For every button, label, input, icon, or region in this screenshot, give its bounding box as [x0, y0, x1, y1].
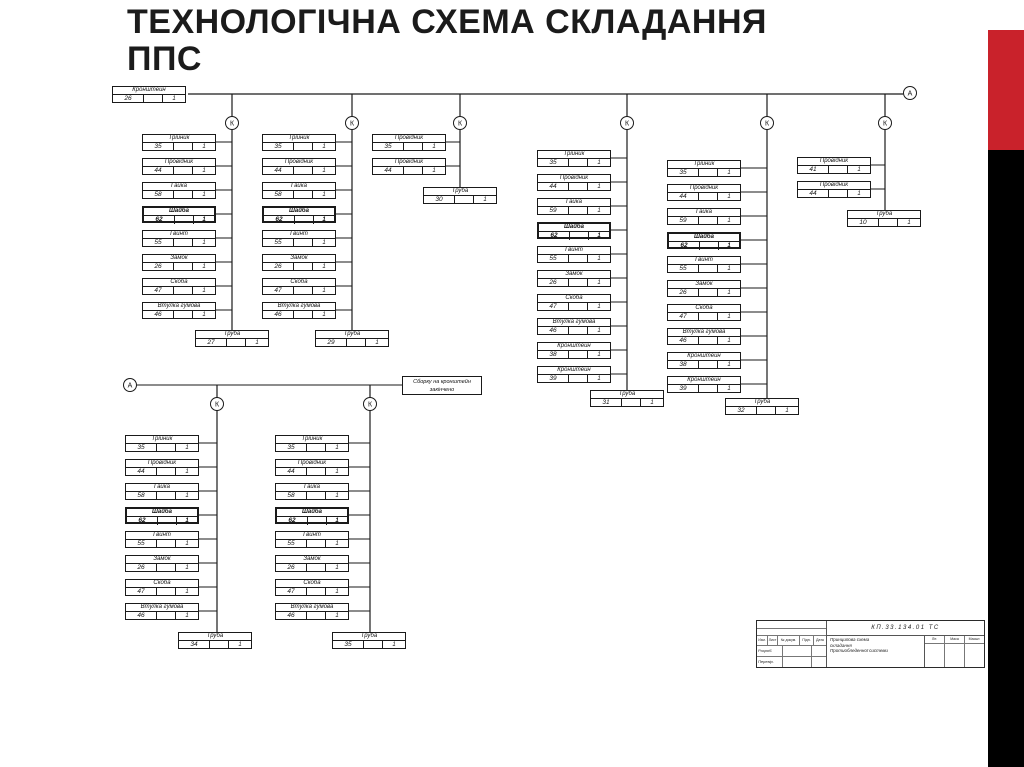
part-qty: 1	[175, 612, 198, 620]
part-box: Труба301	[423, 187, 497, 204]
part-qty: 1	[192, 311, 215, 319]
part-box: Скоба471	[142, 278, 216, 295]
part-box: Замок261	[537, 270, 611, 287]
part-qty: 1	[312, 143, 335, 151]
part-spare-cell	[306, 564, 325, 572]
part-spare-cell	[698, 385, 717, 393]
part-qty: 1	[587, 303, 610, 311]
part-box: Шайба621	[142, 206, 216, 223]
part-box: Кронштейн391	[667, 376, 741, 393]
part-number: 35	[373, 143, 403, 151]
part-qty: 1	[717, 217, 740, 225]
part-spare-cell	[346, 339, 365, 347]
part-number: 62	[144, 216, 174, 224]
part-number: 35	[668, 169, 698, 177]
part-spare-cell	[156, 444, 175, 452]
part-number: 44	[373, 167, 403, 175]
part-box: Втулка гумова461	[262, 302, 336, 319]
part-name: Провідник	[276, 460, 348, 468]
part-name: Кронштейн	[113, 87, 185, 95]
part-name: Замок	[263, 255, 335, 263]
part-qty: 1	[847, 190, 870, 198]
part-box: Труба311	[590, 390, 664, 407]
part-spare-cell	[156, 492, 175, 500]
part-name: Шайба	[144, 208, 214, 216]
part-spare-cell	[568, 159, 587, 167]
part-name: Провідник	[373, 159, 445, 167]
part-number: 62	[127, 517, 157, 525]
title-block: Изм. Лист № докум. Підп. Дата Розроб. Пе…	[756, 620, 985, 668]
part-qty: 1	[245, 339, 268, 347]
part-spare-cell	[156, 588, 175, 596]
part-spare-cell	[569, 232, 588, 240]
part-name: Трійник	[668, 161, 740, 169]
title-block-revision-table: Изм. Лист № докум. Підп. Дата Розроб. Пе…	[757, 621, 827, 667]
part-name: Гайка	[276, 484, 348, 492]
part-name: Труба	[179, 633, 251, 641]
part-box: Провідник351	[372, 134, 446, 151]
part-spare-cell	[403, 167, 422, 175]
part-qty: 1	[192, 167, 215, 175]
part-spare-cell	[156, 612, 175, 620]
part-box: Скоба471	[262, 278, 336, 295]
part-spare-cell	[173, 311, 192, 319]
part-number: 46	[668, 337, 698, 345]
part-name: Трійник	[538, 151, 610, 159]
part-name: Гайка	[126, 484, 198, 492]
part-number: 44	[126, 468, 156, 476]
part-qty: 1	[193, 216, 214, 224]
part-box: Труба291	[315, 330, 389, 347]
part-box: Шайба621	[667, 232, 741, 249]
part-qty: 1	[325, 444, 348, 452]
document-number: КП.33.134.01 ТС	[827, 621, 984, 636]
part-name: Втулка гумова	[538, 319, 610, 327]
part-spare-cell	[293, 311, 312, 319]
part-number: 32	[726, 407, 756, 415]
part-box: Шайба621	[537, 222, 611, 239]
part-spare-cell	[306, 468, 325, 476]
part-number: 44	[276, 468, 306, 476]
part-qty: 1	[717, 361, 740, 369]
part-spare-cell	[878, 219, 897, 227]
part-box: Втулка гумова461	[667, 328, 741, 345]
part-number: 29	[316, 339, 346, 347]
part-spare-cell	[307, 517, 326, 525]
part-number: 62	[539, 232, 569, 240]
part-spare-cell	[306, 444, 325, 452]
part-box: Шайба621	[275, 507, 349, 524]
part-name: Замок	[538, 271, 610, 279]
part-spare-cell	[698, 289, 717, 297]
part-name: Гвинт	[668, 257, 740, 265]
part-name: Труба	[196, 331, 268, 339]
part-name: Гайка	[668, 209, 740, 217]
part-number: 26	[263, 263, 293, 271]
part-box: Скоба471	[537, 294, 611, 311]
part-name: Трійник	[276, 436, 348, 444]
part-number: 44	[538, 183, 568, 191]
part-name: Провідник	[798, 182, 870, 190]
part-name: Кронштейн	[538, 367, 610, 375]
part-name: Скоба	[668, 305, 740, 313]
part-number: 38	[538, 351, 568, 359]
part-spare-cell	[173, 167, 192, 175]
part-number: 58	[126, 492, 156, 500]
part-number: 55	[276, 540, 306, 548]
part-spare-cell	[568, 207, 587, 215]
part-qty: 1	[325, 612, 348, 620]
part-spare-cell	[293, 287, 312, 295]
part-spare-cell	[568, 351, 587, 359]
part-box: Трійник351	[275, 435, 349, 452]
part-box: Провідник441	[275, 459, 349, 476]
part-box: Кронштейн381	[667, 352, 741, 369]
part-box: Гайка581	[262, 182, 336, 199]
part-spare-cell	[828, 190, 847, 198]
part-qty: 1	[175, 564, 198, 572]
part-name: Провідник	[798, 158, 870, 166]
part-box: Труба271	[195, 330, 269, 347]
part-qty: 1	[717, 169, 740, 177]
part-qty: 1	[312, 191, 335, 199]
part-box: Провідник441	[262, 158, 336, 175]
part-box: Гайка591	[667, 208, 741, 225]
part-spare-cell	[568, 327, 587, 335]
part-number: 35	[263, 143, 293, 151]
part-qty: 1	[587, 375, 610, 383]
part-name: Труба	[316, 331, 388, 339]
part-qty: 1	[325, 468, 348, 476]
part-box: Провідник441	[142, 158, 216, 175]
part-number: 35	[538, 159, 568, 167]
part-box: Втулка гумова461	[275, 603, 349, 620]
part-qty: 1	[312, 263, 335, 271]
part-qty: 1	[587, 183, 610, 191]
part-number: 39	[668, 385, 698, 393]
part-qty: 1	[382, 641, 405, 649]
part-box: Провідник441	[667, 184, 741, 201]
part-name: Трійник	[143, 135, 215, 143]
part-name: Гвинт	[143, 231, 215, 239]
part-qty: 1	[312, 311, 335, 319]
part-spare-cell	[699, 242, 718, 250]
part-name: Гвинт	[126, 532, 198, 540]
part-box: Скоба471	[275, 579, 349, 596]
part-qty: 1	[587, 351, 610, 359]
part-number: 46	[263, 311, 293, 319]
part-name: Замок	[668, 281, 740, 289]
part-name: Кронштейн	[668, 353, 740, 361]
part-name: Труба	[424, 188, 496, 196]
part-box: Замок261	[667, 280, 741, 297]
part-spare-cell	[756, 407, 775, 415]
part-number: 47	[276, 588, 306, 596]
part-number: 41	[798, 166, 828, 174]
part-number: 58	[143, 191, 173, 199]
part-name: Шайба	[539, 224, 609, 232]
part-spare-cell	[157, 517, 176, 525]
part-name: Гайка	[263, 183, 335, 191]
part-spare-cell	[698, 265, 717, 273]
title-block-header-row: Изм. Лист № докум. Підп. Дата	[757, 635, 826, 645]
part-qty: 1	[365, 339, 388, 347]
part-box: Трійник351	[125, 435, 199, 452]
part-qty: 1	[192, 143, 215, 151]
part-number: 55	[263, 239, 293, 247]
title-block-grid: Літ. Маса Масшт.	[924, 636, 984, 667]
part-number: 26	[538, 279, 568, 287]
part-number: 44	[668, 193, 698, 201]
part-name: Скоба	[126, 580, 198, 588]
part-spare-cell	[306, 612, 325, 620]
part-name: Шайба	[127, 509, 197, 517]
part-box: Труба321	[725, 398, 799, 415]
part-name: Скоба	[143, 279, 215, 287]
part-qty: 1	[473, 196, 496, 204]
part-number: 46	[126, 612, 156, 620]
part-number: 62	[277, 517, 307, 525]
part-qty: 1	[587, 159, 610, 167]
part-box: Гвинт551	[262, 230, 336, 247]
part-box: Замок261	[275, 555, 349, 572]
title-block-row-checker: Перевір.	[757, 656, 826, 667]
part-spare-cell	[173, 287, 192, 295]
part-spare-cell	[568, 279, 587, 287]
part-spare-cell	[454, 196, 473, 204]
part-qty: 1	[175, 540, 198, 548]
part-spare-cell	[156, 468, 175, 476]
part-box: Провідник441	[125, 459, 199, 476]
part-number: 35	[276, 444, 306, 452]
part-box: Скоба471	[125, 579, 199, 596]
part-name: Гайка	[538, 199, 610, 207]
part-box: Трійник351	[667, 160, 741, 177]
part-number: 44	[798, 190, 828, 198]
part-number: 26	[668, 289, 698, 297]
part-name: Провідник	[668, 185, 740, 193]
part-name: Кронштейн	[538, 343, 610, 351]
part-spare-cell	[173, 239, 192, 247]
title-block-row-developer: Розроб.	[757, 645, 826, 656]
note-box: Сборку на кронштейн закінчено	[402, 376, 482, 395]
part-number: 55	[538, 255, 568, 263]
slide-canvas: ТЕХНОЛОГІЧНА СХЕМА СКЛАДАННЯ ППС ККККККК…	[0, 0, 1024, 767]
part-spare-cell	[568, 255, 587, 263]
part-box: Гвинт551	[667, 256, 741, 273]
part-name: Труба	[848, 211, 920, 219]
part-qty: 1	[312, 287, 335, 295]
part-spare-cell	[226, 339, 245, 347]
part-number: 35	[126, 444, 156, 452]
part-name: Гвинт	[276, 532, 348, 540]
part-number: 55	[143, 239, 173, 247]
part-name: Труба	[591, 391, 663, 399]
part-number: 58	[276, 492, 306, 500]
part-box: Замок261	[125, 555, 199, 572]
part-box: Кронштейн391	[537, 366, 611, 383]
part-box: Гайка581	[125, 483, 199, 500]
part-name: Скоба	[538, 295, 610, 303]
part-spare-cell	[156, 540, 175, 548]
part-box: Гвинт551	[537, 246, 611, 263]
part-box: Втулка гумова461	[125, 603, 199, 620]
part-box: Гвинт551	[275, 531, 349, 548]
part-qty: 1	[192, 263, 215, 271]
part-number: 55	[668, 265, 698, 273]
part-box: Труба341	[178, 632, 252, 649]
part-box: Трійник351	[537, 150, 611, 167]
part-qty: 1	[192, 287, 215, 295]
part-spare-cell	[209, 641, 228, 649]
part-qty: 1	[587, 207, 610, 215]
part-spare-cell	[293, 191, 312, 199]
part-number: 35	[143, 143, 173, 151]
part-name: Скоба	[276, 580, 348, 588]
part-box: Гайка591	[537, 198, 611, 215]
part-number: 44	[143, 167, 173, 175]
drawing-description: Принципова схема складання Протиобледенн…	[827, 636, 924, 667]
part-qty: 1	[192, 191, 215, 199]
part-qty: 1	[587, 327, 610, 335]
part-box: Втулка гумова461	[142, 302, 216, 319]
part-spare-cell	[293, 239, 312, 247]
part-name: Замок	[126, 556, 198, 564]
part-name: Шайба	[277, 509, 347, 517]
part-number: 26	[126, 564, 156, 572]
part-qty: 1	[717, 289, 740, 297]
part-box: Провідник441	[372, 158, 446, 175]
part-box: Кронштейн261	[112, 86, 186, 103]
part-box: Провідник441	[537, 174, 611, 191]
part-qty: 1	[325, 540, 348, 548]
part-name: Провідник	[263, 159, 335, 167]
part-name: Втулка гумова	[276, 604, 348, 612]
part-number: 55	[126, 540, 156, 548]
part-name: Втулка гумова	[668, 329, 740, 337]
part-number: 46	[276, 612, 306, 620]
part-spare-cell	[306, 492, 325, 500]
part-number: 30	[424, 196, 454, 204]
part-number: 47	[126, 588, 156, 596]
part-qty: 1	[325, 564, 348, 572]
part-spare-cell	[568, 303, 587, 311]
part-qty: 1	[175, 444, 198, 452]
part-spare-cell	[568, 183, 587, 191]
part-spare-cell	[156, 564, 175, 572]
part-qty: 1	[228, 641, 251, 649]
part-name: Втулка гумова	[143, 303, 215, 311]
part-box: Трійник351	[142, 134, 216, 151]
part-name: Провідник	[126, 460, 198, 468]
part-name: Кронштейн	[668, 377, 740, 385]
part-number: 62	[669, 242, 699, 250]
part-qty: 1	[313, 216, 334, 224]
part-qty: 1	[775, 407, 798, 415]
part-box: Гвинт551	[125, 531, 199, 548]
part-name: Гайка	[143, 183, 215, 191]
part-name: Гвинт	[263, 231, 335, 239]
part-spare-cell	[828, 166, 847, 174]
part-name: Замок	[276, 556, 348, 564]
part-name: Провідник	[143, 159, 215, 167]
part-qty: 1	[587, 279, 610, 287]
part-spare-cell	[698, 361, 717, 369]
part-box: Трійник351	[262, 134, 336, 151]
part-qty: 1	[192, 239, 215, 247]
part-spare-cell	[294, 216, 313, 224]
part-spare-cell	[403, 143, 422, 151]
part-qty: 1	[312, 239, 335, 247]
part-qty: 1	[175, 492, 198, 500]
part-number: 47	[668, 313, 698, 321]
part-name: Трійник	[263, 135, 335, 143]
part-qty: 1	[588, 232, 609, 240]
part-qty: 1	[717, 193, 740, 201]
part-number: 35	[333, 641, 363, 649]
part-name: Трійник	[126, 436, 198, 444]
part-box: Замок261	[262, 254, 336, 271]
part-box: Труба351	[332, 632, 406, 649]
part-spare-cell	[173, 143, 192, 151]
part-qty: 1	[717, 337, 740, 345]
part-box: Труба101	[847, 210, 921, 227]
part-number: 47	[538, 303, 568, 311]
part-spare-cell	[293, 143, 312, 151]
part-number: 47	[143, 287, 173, 295]
part-box: Провідник411	[797, 157, 871, 174]
part-spare-cell	[174, 216, 193, 224]
part-qty: 1	[717, 313, 740, 321]
part-spare-cell	[698, 313, 717, 321]
part-qty: 1	[175, 468, 198, 476]
part-qty: 1	[312, 167, 335, 175]
part-qty: 1	[422, 167, 445, 175]
part-name: Труба	[726, 399, 798, 407]
part-number: 58	[263, 191, 293, 199]
part-number: 26	[276, 564, 306, 572]
part-spare-cell	[698, 193, 717, 201]
part-spare-cell	[363, 641, 382, 649]
part-qty: 1	[587, 255, 610, 263]
part-box: Замок261	[142, 254, 216, 271]
part-qty: 1	[717, 265, 740, 273]
part-name: Скоба	[263, 279, 335, 287]
part-qty: 1	[162, 95, 185, 103]
part-number: 59	[538, 207, 568, 215]
part-box: Шайба621	[125, 507, 199, 524]
part-number: 59	[668, 217, 698, 225]
part-spare-cell	[698, 217, 717, 225]
part-qty: 1	[325, 492, 348, 500]
part-qty: 1	[718, 242, 739, 250]
part-box: Провідник441	[797, 181, 871, 198]
part-box: Шайба621	[262, 206, 336, 223]
part-number: 38	[668, 361, 698, 369]
part-name: Шайба	[669, 234, 739, 242]
part-spare-cell	[621, 399, 640, 407]
part-number: 31	[591, 399, 621, 407]
part-box: Кронштейн381	[537, 342, 611, 359]
part-number: 10	[848, 219, 878, 227]
part-spare-cell	[293, 167, 312, 175]
part-box: Гвинт551	[142, 230, 216, 247]
part-name: Провідник	[373, 135, 445, 143]
part-spare-cell	[698, 169, 717, 177]
part-number: 26	[113, 95, 143, 103]
part-number: 47	[263, 287, 293, 295]
part-number: 62	[264, 216, 294, 224]
